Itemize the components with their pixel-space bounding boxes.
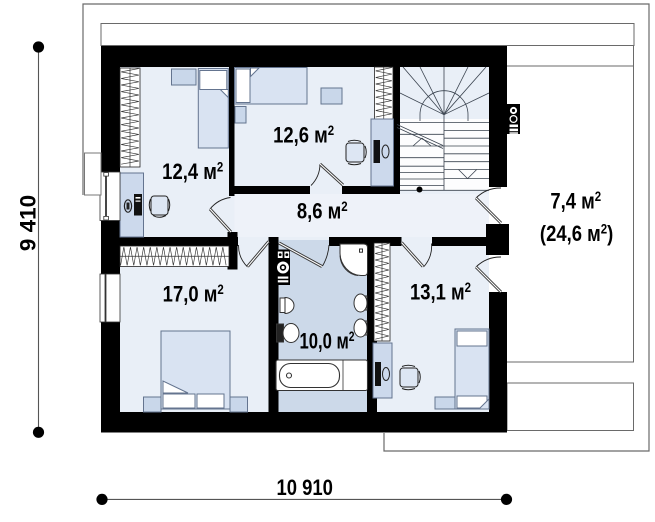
svg-text:12,4 м2: 12,4 м2 (162, 158, 223, 184)
svg-text:12,6 м2: 12,6 м2 (273, 122, 334, 148)
svg-text:9 410: 9 410 (16, 195, 41, 251)
svg-text:10,0 м2: 10,0 м2 (299, 328, 354, 354)
svg-text:7,4 м2: 7,4 м2 (550, 188, 601, 214)
svg-text:10 910: 10 910 (276, 477, 332, 501)
svg-text:13,1 м2: 13,1 м2 (410, 279, 471, 305)
svg-text:17,0 м2: 17,0 м2 (163, 281, 224, 307)
svg-text:8,6 м2: 8,6 м2 (297, 198, 348, 224)
